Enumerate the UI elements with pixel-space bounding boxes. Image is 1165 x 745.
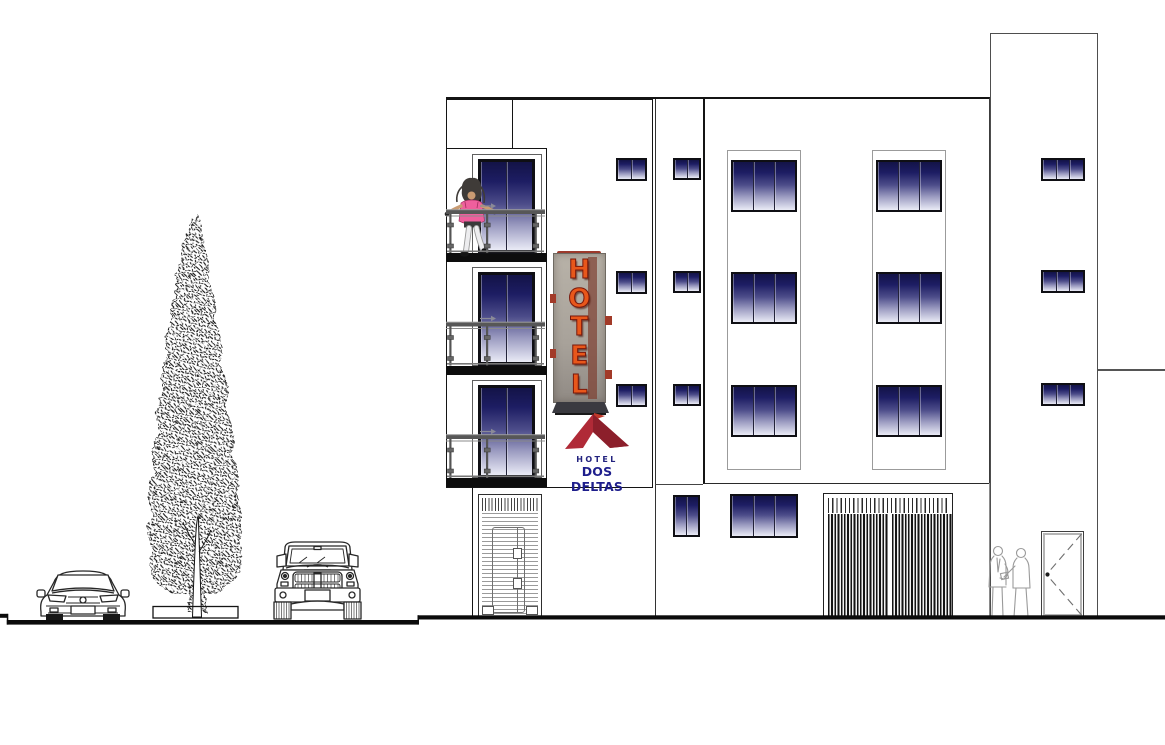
window — [616, 384, 647, 407]
window — [876, 272, 942, 324]
window — [673, 384, 701, 406]
window — [731, 272, 797, 324]
window — [876, 385, 942, 437]
window — [730, 494, 798, 538]
elevation-canvas: HOTEL HOTEL DOS DELTAS — [0, 0, 1165, 745]
window — [616, 271, 647, 294]
windows-layer — [0, 0, 1165, 745]
window — [616, 158, 647, 181]
window — [478, 272, 535, 367]
window — [1041, 270, 1085, 293]
window — [1041, 383, 1085, 406]
window — [1041, 158, 1085, 181]
window — [673, 158, 701, 180]
window — [876, 160, 942, 212]
window — [673, 495, 700, 537]
window — [478, 159, 535, 254]
window — [731, 385, 797, 437]
window — [731, 160, 797, 212]
window — [478, 385, 535, 479]
window — [673, 271, 701, 293]
